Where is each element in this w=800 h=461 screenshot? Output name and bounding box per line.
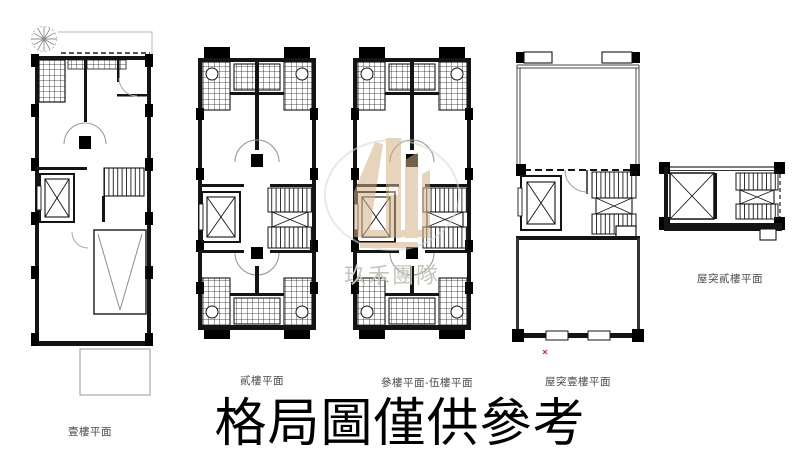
center-wall <box>84 60 87 122</box>
elevator-x <box>527 182 555 224</box>
door-arc <box>565 170 587 192</box>
parapet-post <box>602 52 632 63</box>
rooftop-1-drawing <box>508 48 648 358</box>
wall-post <box>516 52 524 63</box>
rooftop-2-drawing <box>656 160 788 248</box>
wall-post <box>79 136 91 149</box>
tree-icon <box>32 27 57 52</box>
wall-post <box>512 329 524 342</box>
basin <box>206 306 218 318</box>
wall-post <box>774 162 785 174</box>
wall-post <box>251 154 263 167</box>
bathroom-hatch <box>439 278 467 326</box>
garage <box>94 230 146 314</box>
side-wall <box>516 238 519 336</box>
stairs <box>736 173 778 190</box>
core-wall <box>270 184 316 187</box>
basin <box>206 68 218 80</box>
wall-post <box>516 164 526 176</box>
parapet-post <box>546 331 568 340</box>
basin <box>296 68 308 80</box>
balcony-wall <box>230 293 284 296</box>
equipment-box <box>760 229 776 240</box>
front-porch <box>80 349 150 395</box>
parapet-post <box>524 52 552 63</box>
basin <box>451 306 463 318</box>
bathroom-hatch <box>284 278 312 326</box>
team-watermark-text: 玖禾團隊 <box>344 258 440 290</box>
side-wall <box>637 238 640 336</box>
stair-wall <box>102 196 105 222</box>
door-arc <box>72 232 88 248</box>
basin <box>361 306 373 318</box>
core-wall <box>198 184 244 187</box>
center-wall <box>714 173 717 219</box>
stairs <box>268 188 312 212</box>
core-wall <box>198 250 244 253</box>
elevator-x <box>45 179 69 217</box>
elevator-x <box>670 173 714 219</box>
wall-post <box>632 329 644 342</box>
driveway-marking <box>98 234 142 310</box>
disclaimer-text: 格局圖僅供參考 <box>0 396 800 453</box>
rooftop-1-label: 屋突壹樓平面 <box>545 374 611 389</box>
wall-post <box>251 247 263 259</box>
side-wall <box>664 167 668 227</box>
team-watermark-logo <box>318 132 478 262</box>
elevator-door <box>199 204 203 230</box>
bathroom-hatch <box>39 60 65 102</box>
stairs <box>104 168 144 196</box>
center-wall <box>255 266 259 294</box>
balcony-wall <box>385 293 439 296</box>
stairs <box>592 172 636 198</box>
wall-post <box>632 52 640 63</box>
stairs <box>268 227 312 248</box>
parapet-walls <box>517 65 639 170</box>
stairs <box>736 204 778 219</box>
door-arc <box>119 78 137 96</box>
center-wall <box>255 62 259 150</box>
floor-2-drawing <box>192 44 322 366</box>
bottom-wall <box>516 333 640 338</box>
floor-2-label: 貳樓平面 <box>240 373 284 388</box>
floor-3-5-label: 參樓平面-伍樓平面 <box>381 375 473 390</box>
bathroom-hatch <box>202 278 230 326</box>
red-mark <box>543 350 547 354</box>
floor-1-drawing <box>16 20 164 412</box>
core-wall <box>516 236 640 240</box>
basin <box>451 68 463 80</box>
core-wall <box>35 167 87 170</box>
floorplan-canvas: 玖禾團隊 壹樓平面 貳樓平面 參樓平面-伍樓平面 屋突壹樓平面 屋突貳樓平面 格… <box>0 0 800 461</box>
balcony-hatch <box>389 298 435 324</box>
core-wall <box>270 250 316 253</box>
elevator-door <box>518 188 522 216</box>
rooftop-2-label: 屋突貳樓平面 <box>697 271 763 286</box>
elevator-door <box>37 186 41 210</box>
elevator-x <box>207 197 235 237</box>
basin <box>296 306 308 318</box>
parapet-post <box>588 331 610 340</box>
watermark-glyph-notch <box>389 186 398 195</box>
balcony-hatch <box>234 298 280 324</box>
basin <box>361 68 373 80</box>
